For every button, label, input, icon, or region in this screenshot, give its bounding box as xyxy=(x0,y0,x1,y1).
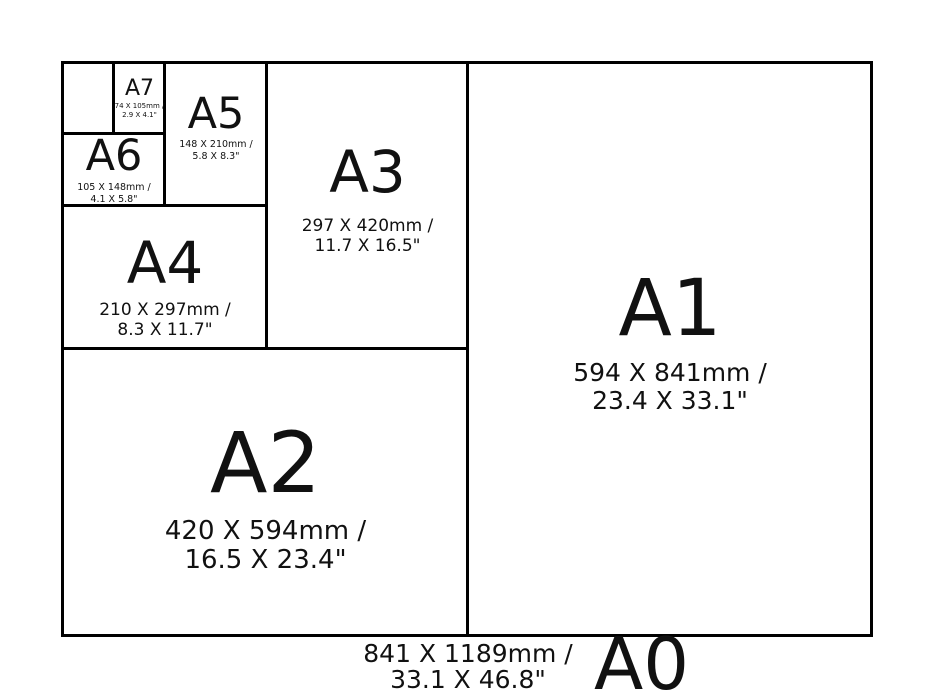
size-mm-a5: 148 X 210mm / xyxy=(179,139,253,151)
empty-cell-top-left xyxy=(63,63,114,134)
size-inches-a3: 11.7 X 16.5" xyxy=(302,236,434,256)
size-box-a4: A4 210 X 297mm / 8.3 X 11.7" xyxy=(63,206,267,349)
size-box-a2: A2 420 X 594mm / 16.5 X 23.4" xyxy=(63,349,468,635)
size-label-a7: A7 xyxy=(125,77,154,100)
size-box-a7: A7 74 X 105mm / 2.9 X 4.1" xyxy=(114,63,165,134)
paper-sizes-diagram: A7 74 X 105mm / 2.9 X 4.1" A6 105 X 148m… xyxy=(0,0,936,700)
size-box-a5: A5 148 X 210mm / 5.8 X 8.3" xyxy=(165,63,267,206)
size-dimensions-a6: 105 X 148mm / 4.1 X 5.8" xyxy=(77,182,151,206)
size-mm-a2: 420 X 594mm / xyxy=(165,517,366,546)
size-box-a1: A1 594 X 841mm / 23.4 X 33.1" xyxy=(468,63,872,635)
size-dimensions-a4: 210 X 297mm / 8.3 X 11.7" xyxy=(99,300,231,340)
size-dimensions-a5: 148 X 210mm / 5.8 X 8.3" xyxy=(179,139,253,163)
size-label-a0: A0 xyxy=(594,628,689,700)
size-label-a3: A3 xyxy=(329,142,406,203)
size-mm-a3: 297 X 420mm / xyxy=(302,216,434,236)
size-label-a4: A4 xyxy=(127,233,204,294)
size-label-a6: A6 xyxy=(86,134,143,179)
size-label-a1: A1 xyxy=(619,269,722,351)
size-mm-a0: 841 X 1189mm / xyxy=(338,641,598,667)
size-inches-a1: 23.4 X 33.1" xyxy=(573,387,767,415)
size-mm-a4: 210 X 297mm / xyxy=(99,300,231,320)
size-label-a5: A5 xyxy=(188,92,245,137)
size-inches-a4: 8.3 X 11.7" xyxy=(99,320,231,340)
size-dimensions-a2: 420 X 594mm / 16.5 X 23.4" xyxy=(165,517,366,575)
size-mm-a1: 594 X 841mm / xyxy=(573,359,767,387)
size-box-a6: A6 105 X 148mm / 4.1 X 5.8" xyxy=(63,134,165,206)
size-dimensions-a3: 297 X 420mm / 11.7 X 16.5" xyxy=(302,216,434,256)
size-box-a3: A3 297 X 420mm / 11.7 X 16.5" xyxy=(267,63,468,349)
size-mm-a7: 74 X 105mm / xyxy=(115,102,165,111)
size-inches-a6: 4.1 X 5.8" xyxy=(77,194,151,206)
size-dimensions-a7: 74 X 105mm / 2.9 X 4.1" xyxy=(115,102,165,120)
size-mm-a6: 105 X 148mm / xyxy=(77,182,151,194)
size-label-a2: A2 xyxy=(210,419,321,507)
size-inches-a0: 33.1 X 46.8" xyxy=(338,667,598,693)
size-dimensions-a0: 841 X 1189mm / 33.1 X 46.8" xyxy=(338,641,598,693)
size-dimensions-a1: 594 X 841mm / 23.4 X 33.1" xyxy=(573,359,767,415)
size-inches-a5: 5.8 X 8.3" xyxy=(179,151,253,163)
size-inches-a2: 16.5 X 23.4" xyxy=(165,546,366,575)
size-inches-a7: 2.9 X 4.1" xyxy=(115,111,165,120)
